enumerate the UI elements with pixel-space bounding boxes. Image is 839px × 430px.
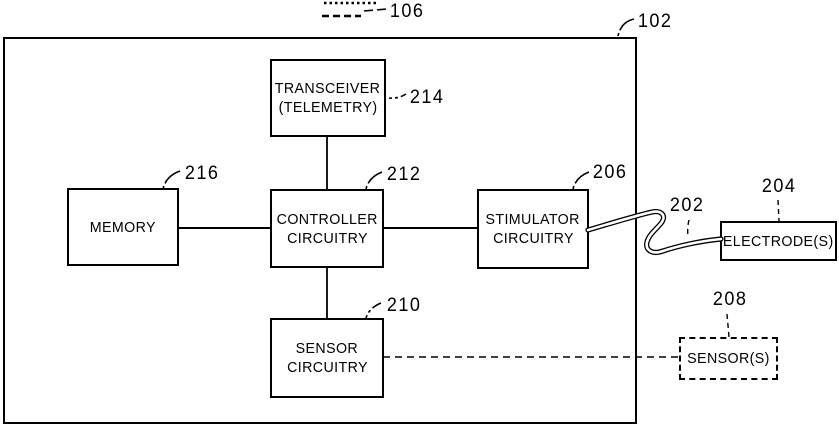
ref-102: 102 xyxy=(638,11,672,33)
ref-202: 202 xyxy=(670,195,704,217)
sensors-label: SENSOR(S) xyxy=(687,349,770,368)
memory-box: MEMORY xyxy=(67,188,179,266)
controller-label-line2: CIRCUITRY xyxy=(287,229,368,248)
ref-106: 106 xyxy=(390,1,424,23)
sensor-circuitry-label-line2: CIRCUITRY xyxy=(287,358,368,377)
controller-label-line1: CONTROLLER xyxy=(276,210,377,229)
ref-208: 208 xyxy=(713,289,747,311)
stimulator-circuitry-box: STIMULATOR CIRCUITRY xyxy=(477,189,589,269)
patent-figure: TRANSCEIVER (TELEMETRY) MEMORY CONTROLLE… xyxy=(0,0,839,430)
device-ref-leader xyxy=(618,19,634,36)
sensors-ref-leader xyxy=(727,314,729,337)
transceiver-label-line1: TRANSCEIVER xyxy=(275,79,381,98)
memory-label: MEMORY xyxy=(90,218,156,237)
electrodes-ref-leader xyxy=(778,200,779,221)
header-leader-line xyxy=(364,9,387,11)
ref-214: 214 xyxy=(410,87,444,109)
ref-216: 216 xyxy=(185,163,219,185)
electrodes-box: ELECTRODE(S) xyxy=(720,221,837,261)
ref-204: 204 xyxy=(762,176,796,198)
ref-206: 206 xyxy=(593,162,627,184)
stimulator-label-line2: CIRCUITRY xyxy=(493,229,574,248)
transceiver-box: TRANSCEIVER (TELEMETRY) xyxy=(270,59,386,137)
controller-circuitry-box: CONTROLLER CIRCUITRY xyxy=(270,189,384,268)
stimulator-label-line1: STIMULATOR xyxy=(486,210,580,229)
ref-212: 212 xyxy=(387,164,421,186)
sensor-circuitry-box: SENSOR CIRCUITRY xyxy=(270,318,384,398)
sensor-circuitry-label-line1: SENSOR xyxy=(296,339,358,358)
lead-ref-leader xyxy=(688,220,689,236)
ref-210: 210 xyxy=(387,295,421,317)
electrodes-label: ELECTRODE(S) xyxy=(723,232,834,251)
sensors-box: SENSOR(S) xyxy=(679,337,778,380)
transceiver-label-line2: (TELEMETRY) xyxy=(279,98,378,117)
